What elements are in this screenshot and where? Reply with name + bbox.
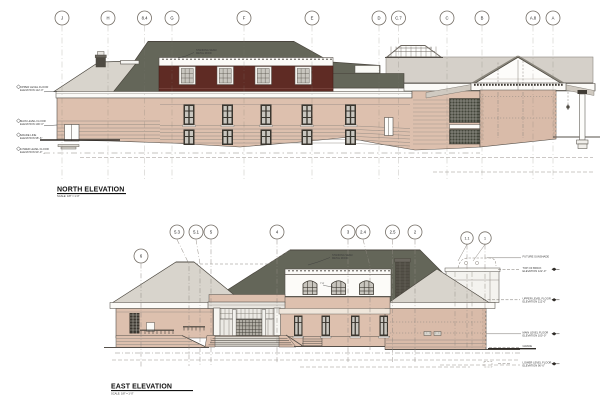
svg-text:J: J <box>61 15 63 20</box>
svg-text:FUTURE SUNSHADE: FUTURE SUNSHADE <box>523 255 550 259</box>
svg-text:8.4: 8.4 <box>142 15 148 20</box>
svg-text:ELEVATION 112'-0": ELEVATION 112'-0" <box>523 300 547 304</box>
svg-text:B: B <box>481 15 484 20</box>
svg-text:ELEVATION 122'-0": ELEVATION 122'-0" <box>523 269 547 273</box>
svg-text:NORTH ELEVATION: NORTH ELEVATION <box>57 187 124 194</box>
svg-text:G: G <box>170 15 173 20</box>
svg-text:C.7: C.7 <box>395 15 402 20</box>
svg-text:D: D <box>377 15 380 20</box>
svg-text:ELEVATION 98'-6": ELEVATION 98'-6" <box>20 136 42 140</box>
svg-text:A: A <box>552 15 555 20</box>
svg-text:SCALE: 1/8" = 1'-0": SCALE: 1/8" = 1'-0" <box>57 194 80 198</box>
svg-text:1: 1 <box>484 236 486 240</box>
svg-text:2.5: 2.5 <box>390 229 396 234</box>
svg-text:METAL ROOF: METAL ROOF <box>332 257 348 260</box>
svg-text:2.4: 2.4 <box>360 229 366 234</box>
svg-text:5.3: 5.3 <box>174 229 180 234</box>
svg-text:ELEVATION 100'-0": ELEVATION 100'-0" <box>20 122 44 126</box>
svg-text:ELEVATION 90'-0": ELEVATION 90'-0" <box>523 364 545 368</box>
svg-text:1.1: 1.1 <box>465 236 470 240</box>
svg-text:H: H <box>106 15 109 20</box>
svg-text:SCALE: 1/8" = 1'-0": SCALE: 1/8" = 1'-0" <box>111 391 134 395</box>
svg-text:A.8: A.8 <box>530 15 537 20</box>
svg-text:ELEVATION 100'-0": ELEVATION 100'-0" <box>523 334 547 338</box>
svg-text:F: F <box>243 15 246 20</box>
svg-text:ELEVATION 112'-0": ELEVATION 112'-0" <box>20 88 44 92</box>
svg-text:C: C <box>445 15 448 20</box>
svg-text:TYP: TYP <box>320 283 325 285</box>
svg-text:GRADE: GRADE <box>523 344 533 348</box>
svg-text:METAL ROOF: METAL ROOF <box>196 52 212 55</box>
svg-text:E: E <box>311 15 314 20</box>
svg-text:5.1: 5.1 <box>193 229 199 234</box>
svg-text:ELEVATION 90'-0": ELEVATION 90'-0" <box>20 150 42 154</box>
svg-text:EAST ELEVATION: EAST ELEVATION <box>111 384 172 391</box>
